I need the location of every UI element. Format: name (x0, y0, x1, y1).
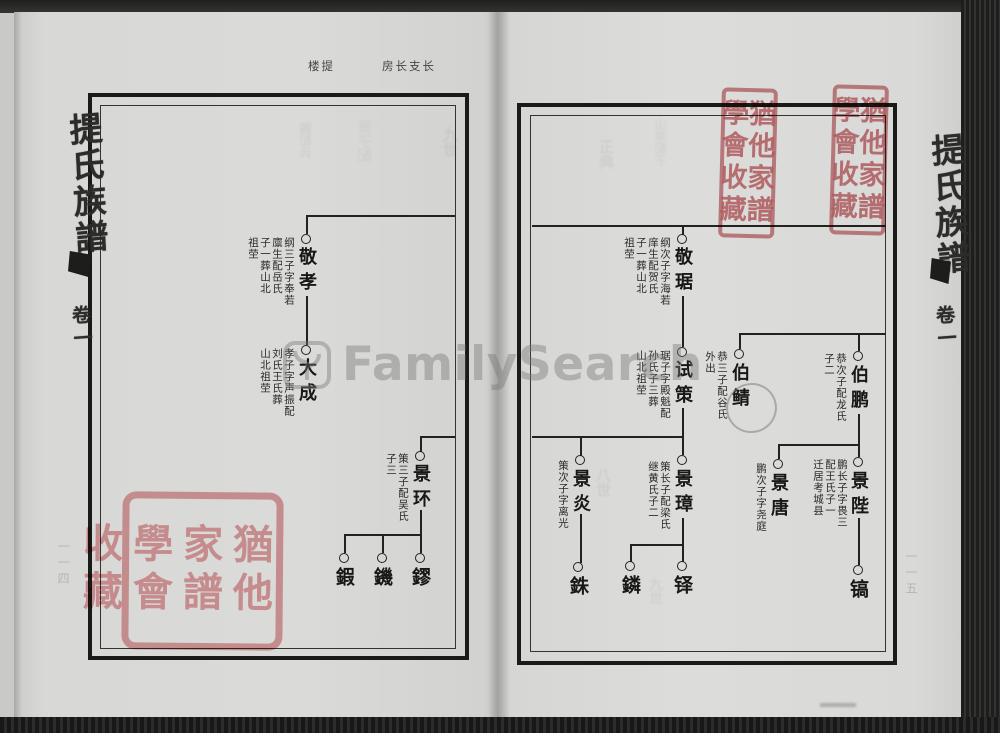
tree-line (306, 215, 455, 217)
person-name: 鐖 (372, 567, 392, 593)
tree-line (630, 544, 683, 546)
collection-seal: 猶他家譜學會收藏 (829, 84, 889, 235)
scan-smudge (820, 703, 856, 707)
tree-line (739, 333, 886, 335)
node-circle (573, 562, 583, 572)
node-circle (853, 351, 863, 361)
collection-seal: 猶他家譜學會收藏 (718, 87, 778, 238)
tree-line (778, 444, 859, 446)
node-circle (301, 234, 311, 244)
node-circle (677, 561, 687, 571)
tree-line (858, 414, 860, 444)
person-name: 铎 (672, 575, 692, 601)
person-note: 策三子配吴氏 子三 (385, 453, 409, 533)
person-note: 纲次子字海若 庠生配贺氏 子一葬山北 祖茔 (623, 237, 671, 317)
person-name: 景璋 (672, 469, 692, 519)
spine-title-right: 提氏族譜 (920, 131, 975, 279)
book-right-edge (961, 0, 1000, 733)
node-circle (415, 553, 425, 563)
node-circle (734, 349, 744, 359)
collection-seal-square: 猶他家譜學會收藏 (121, 491, 283, 650)
tree-line (420, 510, 422, 534)
node-circle (415, 451, 425, 461)
node-circle (677, 234, 687, 244)
tree-line (306, 215, 308, 234)
person-note: 鹏长子字畏三 配王氏子一 迁居考城县 (812, 459, 848, 539)
tree-line (682, 544, 684, 562)
tree-line (630, 544, 632, 562)
person-name: 伯鹏 (848, 365, 868, 415)
book-bottom-edge (0, 717, 1000, 733)
running-header-right: 房长支长 (382, 58, 436, 74)
tree-line (580, 514, 582, 563)
person-name: 景唐 (768, 473, 788, 523)
spine-volume-left: 卷一 (66, 304, 96, 352)
person-note: 策次子字离光 (557, 460, 569, 540)
tree-line (420, 436, 422, 452)
tree-line (580, 436, 582, 456)
spine-title-left: 提氏族譜 (58, 110, 113, 258)
person-note: 鹏次子字尧庭 (755, 463, 767, 543)
node-circle (773, 459, 783, 469)
tree-line (382, 534, 384, 553)
tree-line (858, 333, 860, 351)
tree-line (858, 518, 860, 565)
node-circle (625, 561, 635, 571)
tree-line (682, 518, 684, 544)
person-name: 鍜 (334, 567, 354, 593)
person-name: 景陛 (848, 471, 868, 521)
node-circle (575, 455, 585, 465)
person-name: 銖 (568, 576, 588, 602)
node-circle (853, 457, 863, 467)
scanned-genealogy-spread: 鵬配氏 景子配 九世 正典 山東配子 八世 九世 楼提 房长支长 敬孝 纲三子字… (0, 0, 1000, 733)
running-header-left: 楼提 (308, 58, 335, 74)
person-name: 景炎 (570, 469, 590, 519)
tree-line (420, 436, 455, 438)
tree-line (858, 444, 860, 457)
node-circle (677, 455, 687, 465)
person-name: 镐 (848, 579, 868, 605)
person-note: 策长子配梁氏 继黄氏子二 (647, 461, 671, 541)
node-circle (377, 553, 387, 563)
tree-line (778, 444, 780, 459)
tree-line (682, 408, 684, 455)
node-circle (339, 553, 349, 563)
person-name: 鏻 (620, 575, 640, 601)
person-name: 敬孝 (296, 247, 316, 297)
familysearch-watermark-text: FamilySearch (342, 337, 703, 392)
spine-volume-right: 卷一 (930, 304, 960, 352)
tree-line (739, 333, 741, 349)
person-note: 纲三子字奉若 廪生配岳氏 子一葬山北 祖茔 (247, 237, 295, 317)
person-name: 鏐 (410, 567, 430, 593)
person-note: 恭次子配龙氏 子二 (823, 353, 847, 433)
tree-line (532, 436, 682, 438)
person-note: 恭三子配谷氏 外出 (704, 351, 728, 431)
person-name: 敬琚 (672, 247, 692, 297)
page-number-left: 一一四 (55, 540, 72, 588)
node-circle (853, 565, 863, 575)
familysearch-logo-icon (282, 340, 332, 390)
tree-line (344, 534, 346, 553)
familysearch-watermark: FamilySearch (282, 337, 703, 392)
page-number-right: 一一五 (903, 550, 920, 598)
tree-line (420, 534, 422, 553)
person-name: 景环 (410, 464, 430, 514)
